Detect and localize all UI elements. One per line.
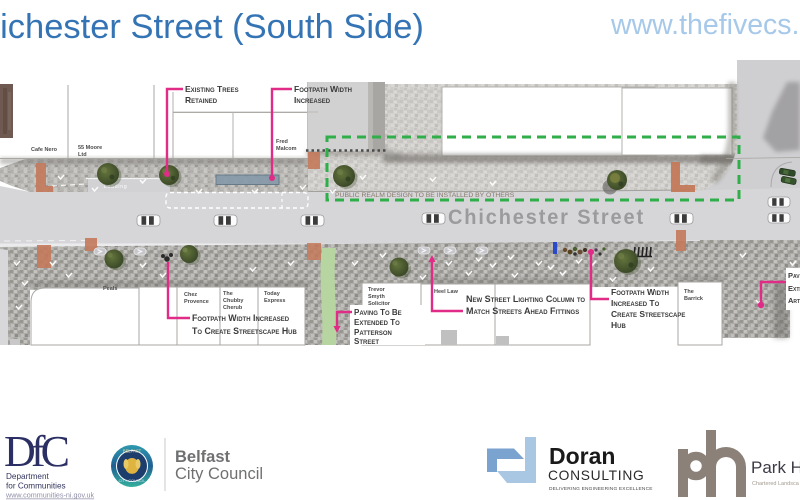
svg-text:Increased To: Increased To [611, 298, 660, 308]
svg-text:Footpath Width: Footpath Width [611, 287, 669, 297]
svg-text:Peals: Peals [103, 286, 117, 292]
svg-text:Cherub: Cherub [223, 305, 243, 311]
svg-text:Chichester Street: Chichester Street [448, 205, 645, 229]
svg-text:Chubby: Chubby [223, 298, 244, 304]
svg-text:www.communities-ni.gov.uk: www.communities-ni.gov.uk [5, 491, 95, 500]
svg-text:Chichester Street (South Side): Chichester Street (South Side) [0, 8, 424, 46]
svg-text:Chez: Chez [184, 292, 197, 298]
svg-text:Increased: Increased [294, 95, 331, 105]
svg-text:Street: Street [354, 337, 379, 346]
svg-text:Barrick: Barrick [684, 296, 704, 302]
svg-text:DfC: DfC [4, 427, 70, 476]
svg-text:CITY COUNCIL: CITY COUNCIL [119, 479, 146, 483]
svg-text:Exten: Exten [788, 284, 800, 293]
svg-text:Match Streets Ahead Fittings: Match Streets Ahead Fittings [466, 306, 579, 316]
svg-text:City Council: City Council [175, 465, 263, 483]
svg-text:Provence: Provence [184, 299, 209, 305]
svg-text:55 Moore: 55 Moore [78, 145, 102, 151]
svg-text:Existing Trees: Existing Trees [185, 84, 239, 94]
svg-text:PUBLIC REALM DESIGN TO BE INST: PUBLIC REALM DESIGN TO BE INSTALLED BY O… [335, 192, 515, 199]
svg-text:Department: Department [6, 472, 50, 481]
svg-text:CONSULTING: CONSULTING [548, 468, 644, 483]
svg-text:BELFAST: BELFAST [123, 449, 142, 454]
svg-text:Smyth: Smyth [368, 294, 385, 300]
svg-text:Extended To: Extended To [354, 318, 400, 327]
svg-text:Create Streetscape: Create Streetscape [611, 309, 685, 319]
svg-text:The: The [223, 291, 233, 297]
svg-text:Belfast: Belfast [175, 448, 231, 466]
svg-text:for Communities: for Communities [6, 482, 66, 491]
svg-text:Chartered Landsca: Chartered Landsca [752, 481, 800, 487]
svg-text:Park H: Park H [751, 458, 800, 477]
svg-text:Malcom: Malcom [276, 146, 297, 152]
svg-text:Paving To Be: Paving To Be [354, 308, 402, 317]
svg-text:Footpath Width: Footpath Width [294, 84, 352, 94]
svg-text:Pavin: Pavin [788, 271, 800, 280]
svg-text:www.thefivecs.info: www.thefivecs.info [610, 9, 800, 41]
svg-text:Ltd: Ltd [78, 152, 87, 158]
svg-text:Footpath Width Increased: Footpath Width Increased [192, 313, 290, 323]
svg-text:Cafe Nero: Cafe Nero [31, 147, 58, 153]
svg-text:Arth: Arth [788, 296, 800, 305]
svg-text:Today: Today [264, 291, 281, 297]
svg-text:Patterson: Patterson [354, 328, 392, 337]
svg-text:Heel Law: Heel Law [434, 289, 459, 295]
svg-text:The: The [684, 289, 694, 295]
svg-text:Hub: Hub [611, 320, 626, 330]
svg-text:DELIVERING ENGINEERING EXCELLE: DELIVERING ENGINEERING EXCELLENCE [549, 486, 653, 492]
svg-text:Doran: Doran [549, 443, 615, 469]
svg-text:New Street Lighting Column to: New Street Lighting Column to [466, 294, 585, 304]
svg-text:Trevor: Trevor [368, 287, 386, 293]
svg-text:Fred: Fred [276, 139, 288, 145]
svg-text:Retained: Retained [185, 95, 218, 105]
svg-text:Express: Express [264, 298, 285, 304]
svg-text:To Create Streetscape Hub: To Create Streetscape Hub [192, 326, 298, 336]
